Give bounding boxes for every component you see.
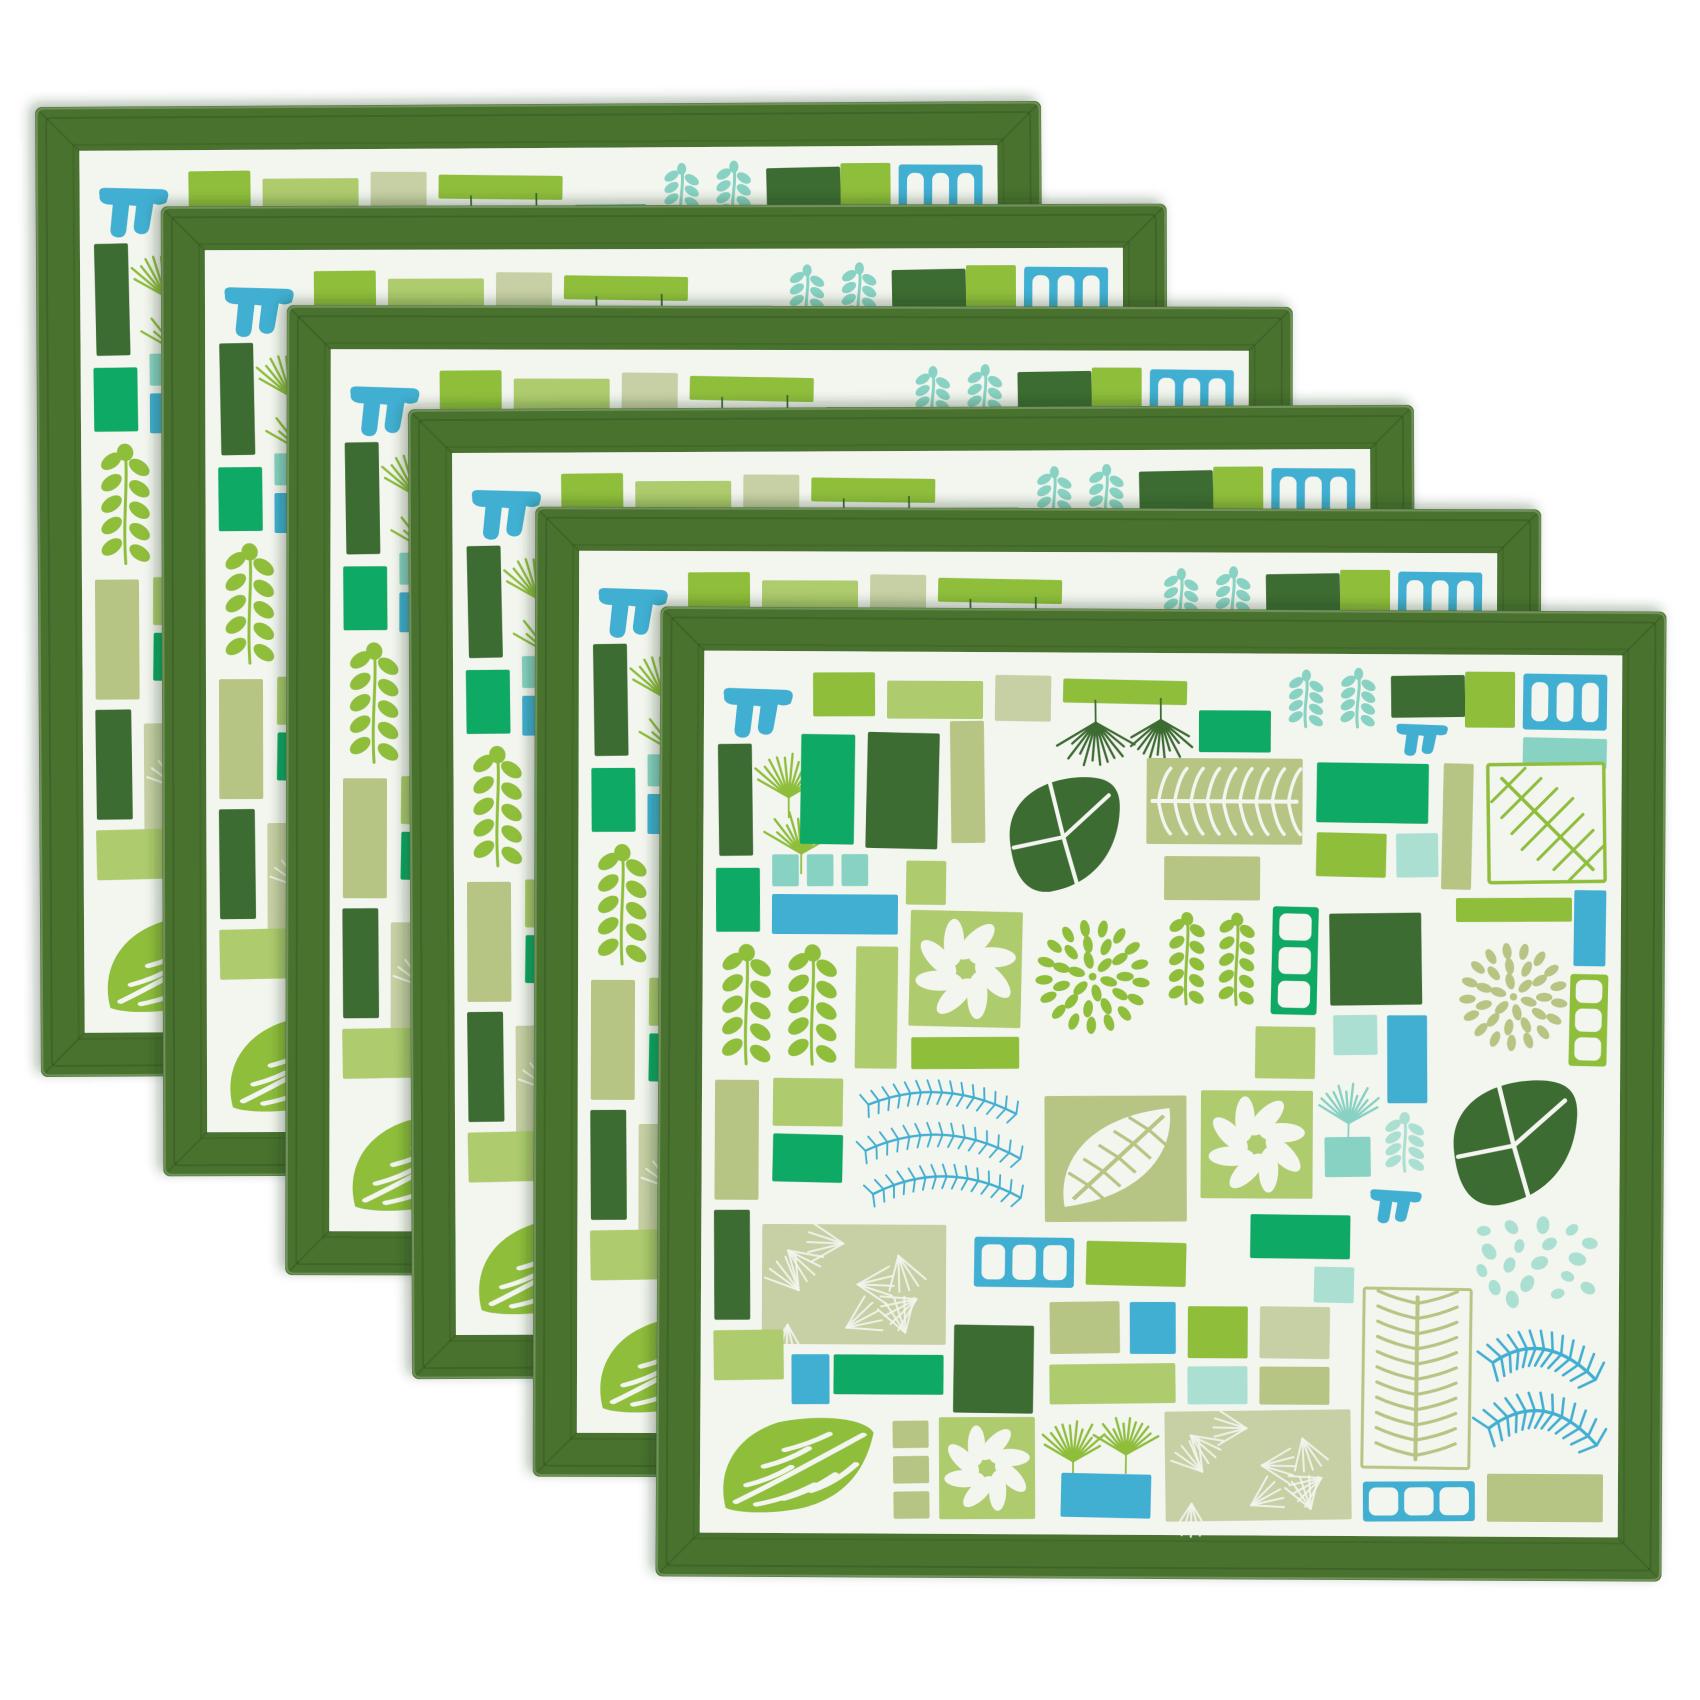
tile-window — [1568, 974, 1608, 1067]
tile-rect — [342, 1028, 413, 1079]
tile-rect — [811, 477, 935, 503]
placemat-stack — [0, 0, 1700, 1700]
tile-rect — [1130, 1302, 1176, 1354]
tile-rect — [438, 175, 562, 200]
tile-rect — [1316, 832, 1387, 878]
tile-rect — [1049, 1301, 1120, 1354]
tile-rect — [219, 809, 256, 919]
tile-rect — [911, 1037, 1019, 1069]
tile-rect — [1333, 1015, 1377, 1056]
tile-rect — [1060, 1473, 1151, 1519]
tile-rect — [1396, 833, 1439, 878]
tile-rect — [219, 679, 263, 799]
tile-rect — [345, 442, 381, 555]
tile-rect — [467, 882, 512, 1002]
tile-rect — [773, 1078, 844, 1127]
tile-rect — [865, 732, 940, 850]
tile-rect — [800, 734, 856, 845]
tile-rect — [813, 672, 875, 716]
tile-rect — [906, 860, 947, 905]
tile-fernV — [1362, 1288, 1471, 1468]
tile-rect — [593, 644, 629, 756]
tile-rect — [590, 1110, 627, 1220]
tile-rect — [938, 578, 1062, 604]
tile-minirow — [772, 854, 868, 886]
tile-palmtex — [1164, 1408, 1352, 1537]
tile-rect — [1086, 1241, 1187, 1287]
tile-rect — [714, 1210, 750, 1320]
tile-rect — [343, 566, 387, 630]
tile-leafbox — [1488, 763, 1605, 882]
tile-rect — [1573, 890, 1606, 966]
tile-rect — [1324, 1137, 1370, 1178]
tile-flower — [1200, 1090, 1313, 1199]
tile-rect — [689, 376, 813, 402]
tile-window — [1523, 674, 1608, 731]
tile-window — [1363, 1481, 1475, 1521]
tile-rect — [1387, 1015, 1427, 1103]
tile-rect — [716, 868, 760, 932]
tile-rect — [591, 768, 635, 832]
tile-rect — [1316, 762, 1429, 824]
tile-rect — [953, 1325, 1034, 1414]
tile-rect — [887, 681, 983, 720]
tile-bigleaf — [996, 769, 1130, 899]
tile-rect — [590, 1229, 661, 1280]
tile-fernH — [1146, 758, 1302, 845]
tile-flower — [939, 1417, 1035, 1519]
tile-rect — [766, 167, 841, 211]
tile-rect — [93, 367, 138, 432]
tile-rect — [892, 269, 967, 312]
tile-rect — [713, 1329, 784, 1380]
tile-rect — [466, 670, 511, 735]
tile-rect — [564, 275, 688, 301]
tile-rect — [467, 1012, 504, 1122]
tile-rect — [1199, 710, 1271, 752]
tile-rect — [342, 908, 379, 1018]
tile-rect — [95, 579, 140, 699]
tile-rect — [950, 721, 985, 843]
tile-bigleaf — [1438, 1071, 1589, 1214]
tile-minicol — [892, 1420, 929, 1518]
tile-rect — [343, 778, 387, 898]
tile-rect — [1259, 1306, 1330, 1359]
tile-rect — [995, 675, 1052, 722]
tile-rect — [440, 370, 502, 414]
tile-rect — [95, 709, 133, 820]
tile-rect — [467, 546, 503, 659]
product-photo: Stack of six identical square placemats … — [0, 0, 1700, 1700]
tile-palmtex — [762, 1223, 947, 1362]
tile-rect — [1063, 678, 1188, 705]
tile-rect — [772, 894, 898, 935]
tile-rect — [1188, 1306, 1248, 1358]
tile-rect — [218, 467, 263, 531]
tile-rect — [714, 1080, 759, 1200]
tile-rect — [1329, 913, 1422, 1006]
tile-rect — [1487, 1474, 1603, 1523]
tile-flower — [908, 910, 1023, 1029]
tile-window — [974, 1237, 1075, 1288]
tile-rect — [1164, 856, 1260, 901]
tile-rect — [772, 1133, 843, 1183]
tile-rect — [1465, 672, 1515, 728]
tile-rect — [94, 243, 131, 356]
tile-rect — [1187, 1366, 1247, 1404]
tile-rect — [1441, 763, 1474, 890]
tile-rect — [1255, 1026, 1316, 1079]
tile-rect — [96, 829, 167, 881]
tile-rect — [833, 1354, 943, 1395]
tile-rect — [219, 343, 255, 456]
tile-rect — [1259, 1367, 1329, 1405]
tile-rect — [1139, 470, 1214, 514]
tile-rect — [468, 1131, 539, 1183]
placemat-6 — [655, 606, 1666, 1581]
tile-rect — [219, 928, 290, 979]
tile-rect — [1250, 1214, 1351, 1259]
tile-rect — [591, 980, 635, 1100]
tile-rect — [855, 946, 899, 1069]
tile-rect — [791, 1354, 829, 1404]
tile-rect — [718, 744, 753, 856]
tile-rect — [1391, 675, 1466, 718]
tile-rect — [1314, 1266, 1355, 1303]
tile-window — [1270, 906, 1318, 1015]
tile-rect — [1049, 1363, 1175, 1405]
tile-rect — [1456, 898, 1572, 922]
tile-palmleaf — [1044, 1096, 1186, 1222]
